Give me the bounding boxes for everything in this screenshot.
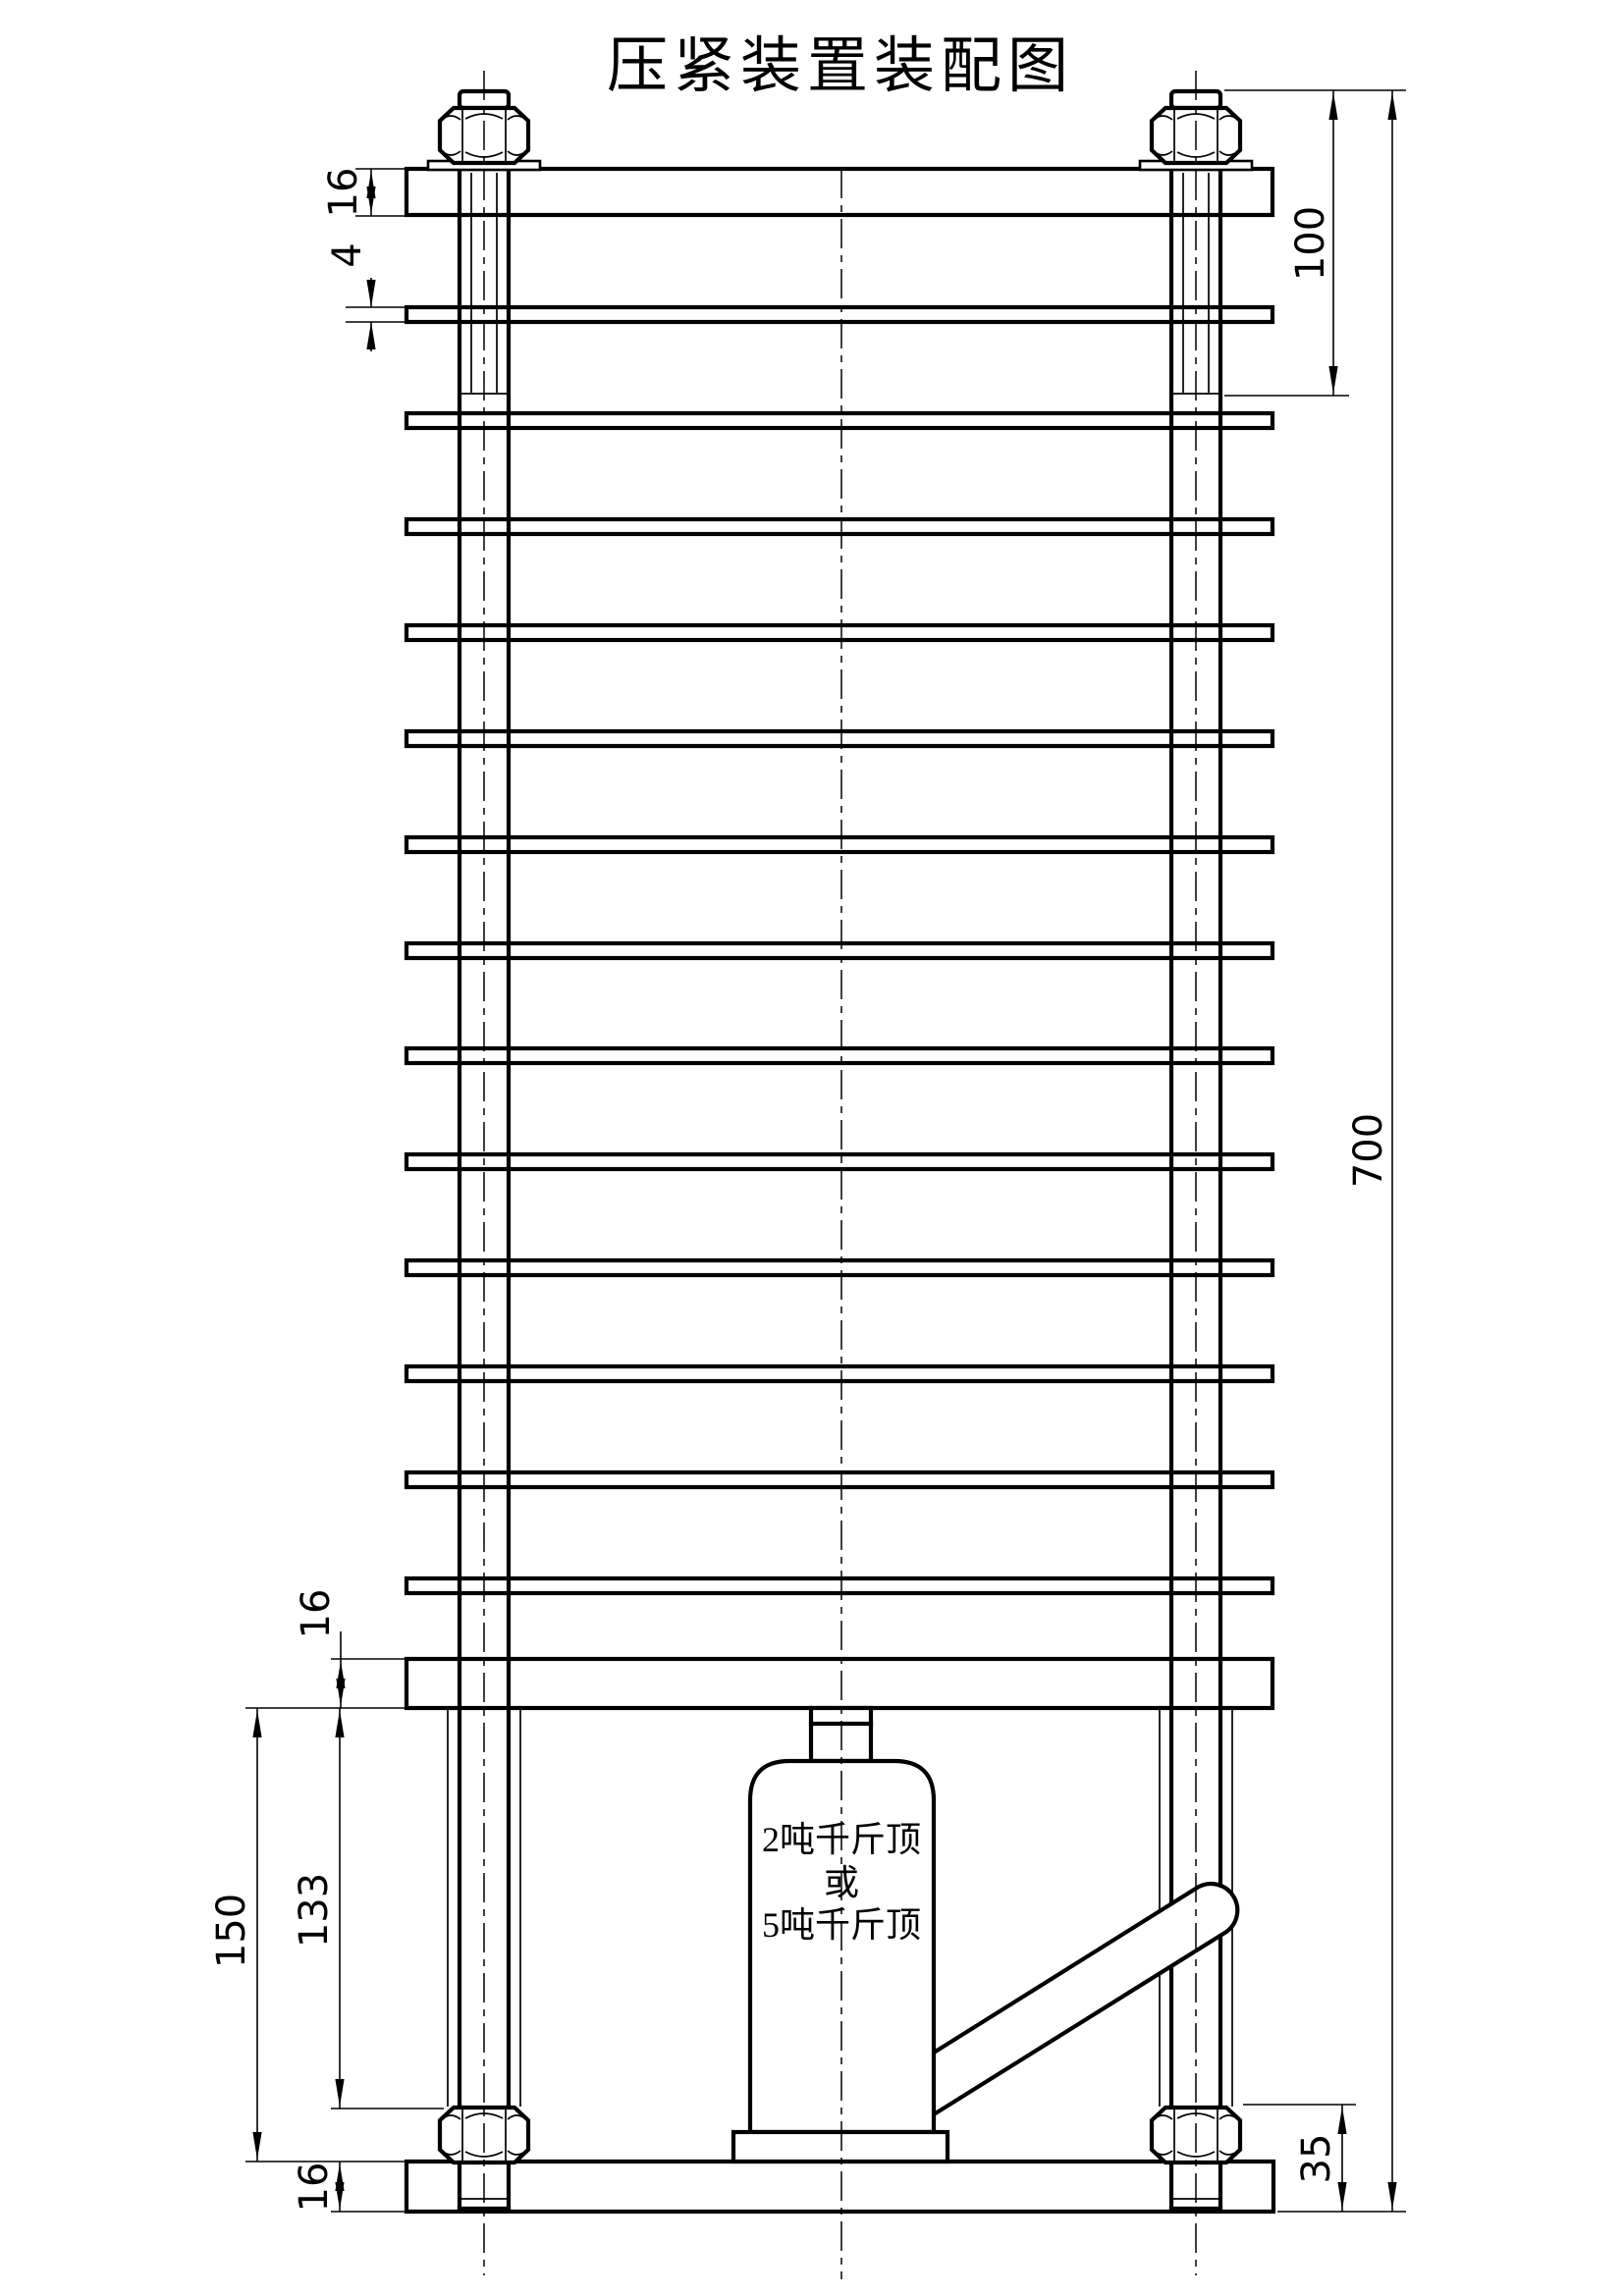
top-plate [406, 169, 1272, 215]
drawing-canvas: 压紧装置装配图 [0, 0, 1624, 2296]
dim-base-plate-16-label: 16 [292, 2163, 337, 2213]
laminate-plate [406, 307, 1272, 322]
jack-base [733, 2132, 947, 2162]
dim-top-plate-16: 16 [321, 168, 408, 218]
laminate-plate [406, 1260, 1272, 1275]
page-title: 压紧装置装配图 [607, 33, 1074, 100]
dim-bottom-plate-16-label: 16 [294, 1589, 339, 1639]
laminate-plate [406, 1366, 1272, 1381]
laminate-plate [406, 1048, 1272, 1063]
laminate-plate [406, 731, 1272, 746]
laminate-plate [406, 1472, 1272, 1487]
dim-stud-133: 133 [292, 1708, 444, 2109]
dim-overall-700-label: 700 [1346, 1113, 1391, 1188]
laminate-plate [406, 837, 1272, 852]
dim-space-150-label: 150 [209, 1894, 254, 1968]
dim-nut-35: 35 [1243, 2105, 1356, 2212]
dim-laminate-4-label: 4 [325, 242, 370, 267]
dim-laminate-4: 4 [325, 242, 408, 351]
hydraulic-jack: 2吨千斤顶 或 5吨千斤顶 [733, 1708, 1237, 2162]
dim-bottom-plate-16: 16 [245, 1589, 408, 1708]
dim-top-plate-16-label: 16 [321, 168, 366, 218]
dim-thread-100: 100 [1224, 90, 1406, 396]
dim-nut-35-label: 35 [1294, 2134, 1339, 2184]
laminate-plate [406, 1154, 1272, 1169]
laminate-plate [406, 625, 1272, 640]
jack-handle [934, 1884, 1237, 2114]
laminate-plate [406, 519, 1272, 534]
base-plate [406, 2162, 1273, 2212]
dim-overall-700: 700 [1277, 90, 1406, 2212]
bottom-plate [406, 1659, 1272, 1708]
laminate-plate [406, 943, 1272, 958]
laminate-stack [406, 307, 1272, 1593]
dim-base-plate-16: 16 [292, 2162, 408, 2212]
dim-stud-133-label: 133 [292, 1873, 337, 1948]
assembly-drawing: 压紧装置装配图 [0, 0, 1624, 2296]
dim-thread-100-label: 100 [1288, 206, 1333, 281]
laminate-plate [406, 413, 1272, 428]
laminate-plate [406, 1578, 1272, 1593]
